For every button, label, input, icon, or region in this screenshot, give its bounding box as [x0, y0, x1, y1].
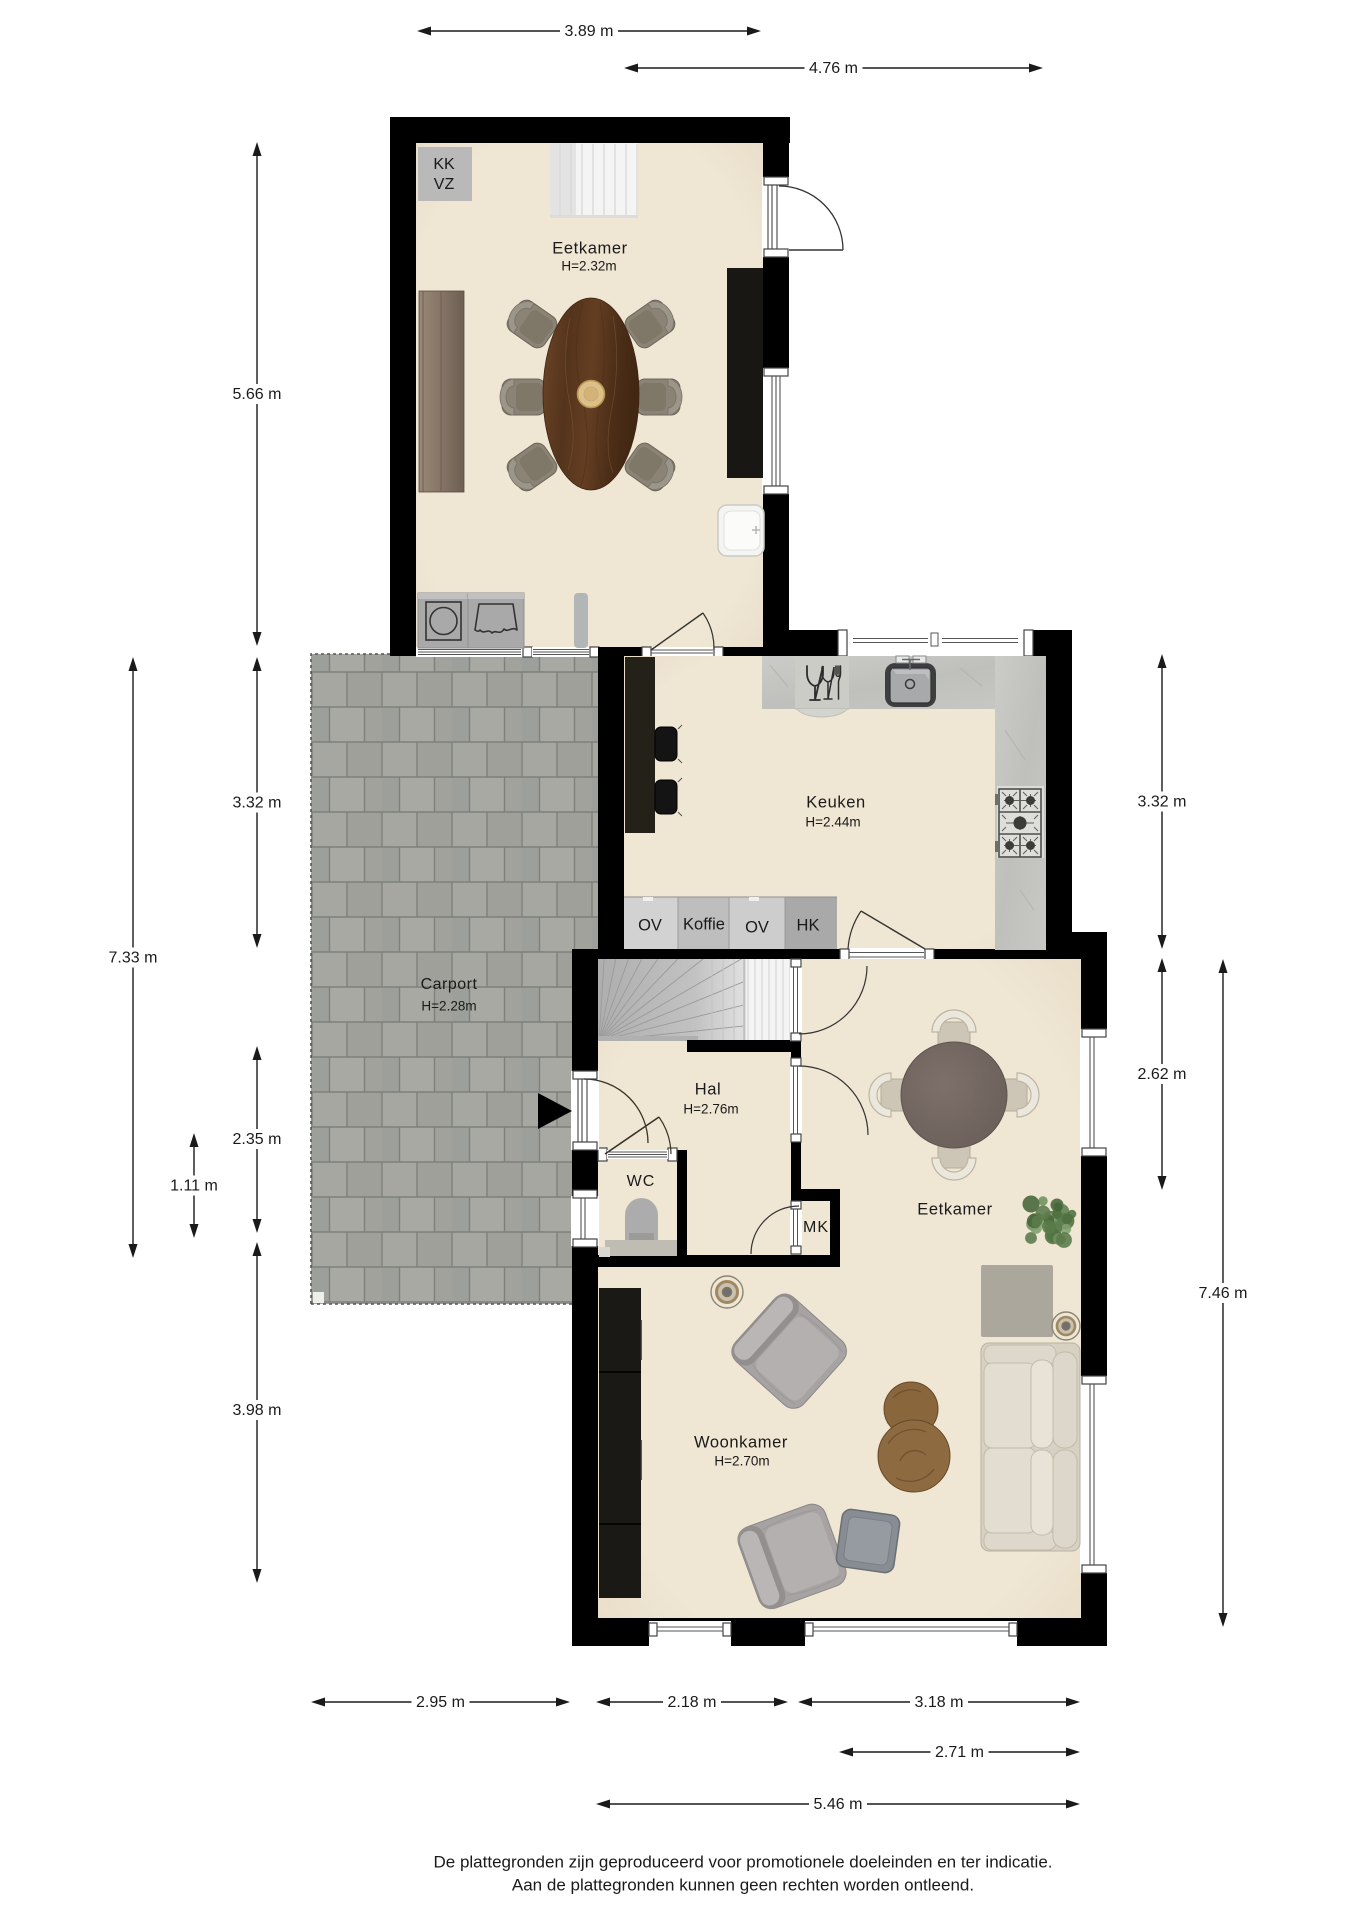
svg-text:Hal: Hal	[695, 1080, 722, 1098]
svg-text:3.89 m: 3.89 m	[565, 23, 614, 40]
svg-text:4.76 m: 4.76 m	[809, 60, 858, 77]
svg-text:Carport: Carport	[421, 976, 478, 993]
svg-text:2.95 m: 2.95 m	[416, 1694, 465, 1711]
svg-text:Eetkamer: Eetkamer	[917, 1200, 992, 1218]
svg-text:2.71 m: 2.71 m	[935, 1744, 984, 1761]
svg-text:VZ: VZ	[434, 176, 455, 193]
svg-text:OV: OV	[638, 916, 662, 934]
svg-text:H=2.28m: H=2.28m	[421, 999, 476, 1014]
svg-text:Woonkamer: Woonkamer	[694, 1433, 788, 1451]
svg-text:HK: HK	[797, 916, 820, 934]
svg-text:H=2.44m: H=2.44m	[805, 815, 860, 830]
svg-text:3.32 m: 3.32 m	[233, 795, 282, 812]
svg-text:De plattegronden zijn geproduc: De plattegronden zijn geproduceerd voor …	[433, 1852, 1052, 1871]
svg-text:Aan de plattegronden kunnen ge: Aan de plattegronden kunnen geen rechten…	[512, 1875, 974, 1894]
svg-text:3.98 m: 3.98 m	[233, 1402, 282, 1419]
svg-text:H=2.70m: H=2.70m	[714, 1454, 769, 1469]
svg-text:2.62 m: 2.62 m	[1138, 1066, 1187, 1083]
svg-text:7.46 m: 7.46 m	[1199, 1285, 1248, 1302]
svg-text:1.11 m: 1.11 m	[170, 1178, 218, 1195]
svg-text:3.18 m: 3.18 m	[915, 1694, 964, 1711]
svg-text:2.35 m: 2.35 m	[233, 1131, 282, 1148]
svg-text:7.33 m: 7.33 m	[109, 950, 158, 967]
svg-text:Koffie: Koffie	[683, 915, 725, 933]
svg-text:2.18 m: 2.18 m	[668, 1694, 717, 1711]
svg-text:3.32 m: 3.32 m	[1138, 794, 1187, 811]
svg-text:H=2.32m: H=2.32m	[561, 259, 616, 274]
svg-text:5.46 m: 5.46 m	[814, 1796, 863, 1813]
svg-text:5.66 m: 5.66 m	[233, 386, 282, 403]
svg-text:H=2.76m: H=2.76m	[683, 1102, 738, 1117]
svg-text:MK: MK	[803, 1219, 829, 1236]
svg-text:Keuken: Keuken	[806, 793, 866, 811]
svg-text:KK: KK	[433, 156, 455, 173]
svg-text:WC: WC	[627, 1173, 656, 1190]
svg-text:Eetkamer: Eetkamer	[552, 239, 627, 257]
svg-text:OV: OV	[745, 918, 769, 936]
